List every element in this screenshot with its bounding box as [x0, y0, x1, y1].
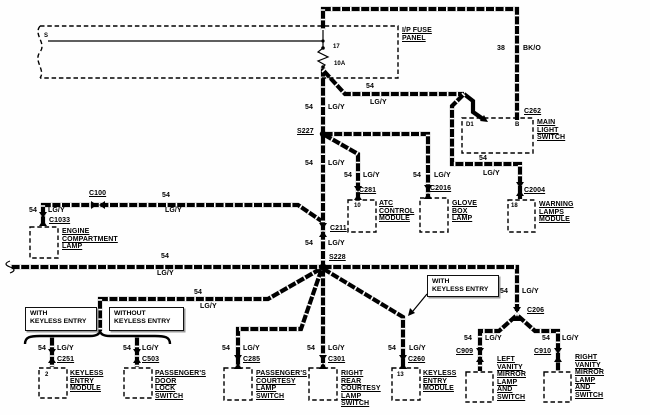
wire-label: LG/Y	[485, 335, 502, 343]
wire-label: 54	[162, 192, 170, 200]
wire-label: LG/Y	[434, 172, 451, 180]
without-keyless-option-box: WITHOUT KEYLESS ENTRY	[109, 307, 184, 331]
wire-label: 54	[38, 345, 46, 353]
component-boxes	[30, 26, 571, 402]
wire-label: LG/Y	[243, 345, 260, 353]
wire-label: LG/Y	[328, 104, 345, 112]
wire-label: 54	[123, 345, 131, 353]
splice-s227	[320, 131, 326, 137]
wire-label: 54	[307, 345, 315, 353]
splice-label-s228: S228	[329, 254, 346, 262]
fuse-17-symbol	[48, 30, 328, 69]
right-vanity-box	[544, 372, 571, 402]
component-label-keyless-module-left: KEYLESS ENTRY MODULE	[70, 370, 103, 393]
component-label-right-vanity: RIGHT VANITY MIRROR LAMP AND SWITCH	[575, 354, 604, 400]
component-label-keyless-module-right: KEYLESS ENTRY MODULE	[423, 370, 456, 393]
wire-label: 54	[194, 289, 202, 297]
wire-label: 54	[344, 172, 352, 180]
courtesy-switch-box	[224, 368, 252, 400]
wire-label: 54	[305, 160, 313, 168]
connector-label: C262	[524, 108, 541, 116]
wire-label: LG/Y	[48, 207, 65, 215]
wire-label: LG/Y	[200, 303, 217, 311]
connector-label: C285	[243, 356, 260, 364]
wire-label: 54	[479, 155, 487, 163]
component-label-warning-lamps: WARNING LAMPS MODULE	[539, 201, 574, 224]
wire-label: 54	[542, 335, 550, 343]
component-label-main-light-switch: MAIN LIGHT SWITCH	[537, 119, 565, 142]
connector-label: C503	[142, 356, 159, 364]
wire-label: 54	[388, 345, 396, 353]
atc-module-box	[348, 200, 376, 232]
wire-label: LG/Y	[328, 160, 345, 168]
with-keyless-arrow	[408, 294, 427, 316]
component-label-courtesy-switch: PASSENGER'S COURTESY LAMP SWITCH	[256, 370, 307, 400]
wire-label: LG/Y	[157, 270, 174, 278]
wire-label: 54	[305, 240, 313, 248]
connector-label: C251	[57, 356, 74, 364]
component-label-rear-courtesy-switch: RIGHT REAR COURTESY LAMP SWITCH	[341, 370, 381, 408]
wire-label: 54	[222, 345, 230, 353]
connector-label: C1033	[49, 217, 70, 225]
component-label-atc-module: ATC CONTROL MODULE	[379, 200, 414, 223]
wire-label: LG/Y	[363, 172, 380, 180]
component-label-door-lock-switch: PASSENGER'S DOOR LOCK SWITCH	[155, 370, 206, 400]
with-keyless-callout: WITH KEYLESS ENTRY	[427, 275, 499, 297]
fuse-number: 17	[333, 44, 340, 50]
wire-label: LG/Y	[57, 345, 74, 353]
wire-label: LG/Y	[483, 170, 500, 178]
pin-label: B	[515, 122, 519, 128]
left-vanity-box	[466, 372, 493, 402]
pin-label: 10	[354, 203, 361, 209]
door-lock-switch-box	[124, 368, 152, 398]
fuse-panel-wavy-edge	[38, 26, 42, 78]
splice-label-s227: S227	[297, 128, 314, 136]
wire-label: 54	[305, 104, 313, 112]
wire-label: 54	[366, 83, 374, 91]
engine-lamp-box	[30, 227, 58, 258]
wire-label: LG/Y	[522, 288, 539, 296]
fuse-panel-box	[40, 26, 398, 78]
wire-label: LG/Y	[165, 207, 182, 215]
keyless-module-left-box	[39, 368, 67, 398]
pin-label: 18	[511, 203, 518, 209]
pin-label: D1	[466, 122, 474, 128]
with-keyless-option-box: WITH KEYLESS ENTRY	[25, 307, 97, 331]
wire-label: 54	[29, 207, 37, 215]
wire-label: 54	[500, 288, 508, 296]
connector-label: C281	[359, 187, 376, 195]
connector-label: C260	[408, 356, 425, 364]
connector-label: C909	[456, 348, 473, 356]
option-brace	[25, 330, 170, 344]
wire-label: LG/Y	[562, 335, 579, 343]
wire-label: LG/Y	[328, 240, 345, 248]
connector-label: C910	[534, 348, 551, 356]
glove-box-lamp-box	[420, 198, 448, 232]
wire-label: BK/O	[523, 45, 541, 53]
splice-s228	[319, 263, 326, 270]
fuse-rating: 10A	[334, 61, 345, 67]
pin-label: 13	[397, 372, 404, 378]
rear-courtesy-switch-box	[309, 368, 337, 400]
connector-label: C206	[527, 307, 544, 315]
bus-label: S	[44, 33, 48, 39]
wire-label: 54	[413, 172, 421, 180]
pin-label: 2	[45, 372, 48, 378]
wire-label: 38	[497, 45, 505, 53]
wire-label: LG/Y	[142, 345, 159, 353]
wire-label: 54	[161, 253, 169, 261]
wiring-diagram-canvas: 54 LG/Y 38 BK/O 54 LG/Y 54 LG/Y 54 LG/Y …	[0, 0, 650, 415]
component-label-glove-box-lamp: GLOVE BOX LAMP	[452, 200, 477, 223]
connector-label: C2004	[524, 187, 545, 195]
connector-label: C2016	[430, 185, 451, 193]
connector-label: C301	[328, 356, 345, 364]
component-label-left-vanity: LEFT VANITY MIRROR LAMP AND SWITCH	[497, 356, 526, 402]
wire-label: LG/Y	[409, 345, 426, 353]
connector-label: C100	[89, 190, 106, 198]
component-label-engine-lamp: ENGINE COMPARTMENT LAMP	[62, 228, 118, 251]
wire-label: LG/Y	[370, 99, 387, 107]
wire-label: LG/Y	[328, 345, 345, 353]
fuse-panel-label: I/P FUSE PANEL	[402, 27, 432, 42]
connector-label: C211	[330, 225, 347, 233]
wire-label: 54	[464, 335, 472, 343]
